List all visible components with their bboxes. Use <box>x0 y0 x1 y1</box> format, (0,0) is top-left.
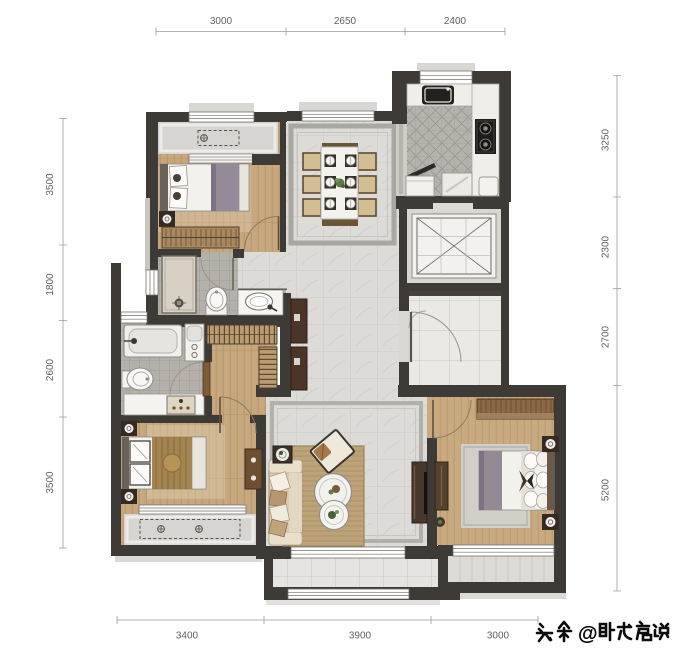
svg-text:3000: 3000 <box>487 631 510 642</box>
svg-text:5200: 5200 <box>601 478 612 501</box>
svg-text:3500: 3500 <box>45 471 56 494</box>
svg-text:1800: 1800 <box>45 273 56 296</box>
svg-text:3500: 3500 <box>45 173 56 196</box>
svg-text:2600: 2600 <box>45 358 56 381</box>
svg-text:@: @ <box>578 623 598 645</box>
svg-text:2650: 2650 <box>334 16 357 27</box>
svg-text:3400: 3400 <box>176 631 199 642</box>
svg-text:2400: 2400 <box>444 16 467 27</box>
svg-text:2300: 2300 <box>601 235 612 258</box>
svg-text:2700: 2700 <box>601 325 612 348</box>
svg-text:3250: 3250 <box>601 128 612 151</box>
svg-text:3900: 3900 <box>349 631 372 642</box>
svg-text:3000: 3000 <box>210 16 233 27</box>
